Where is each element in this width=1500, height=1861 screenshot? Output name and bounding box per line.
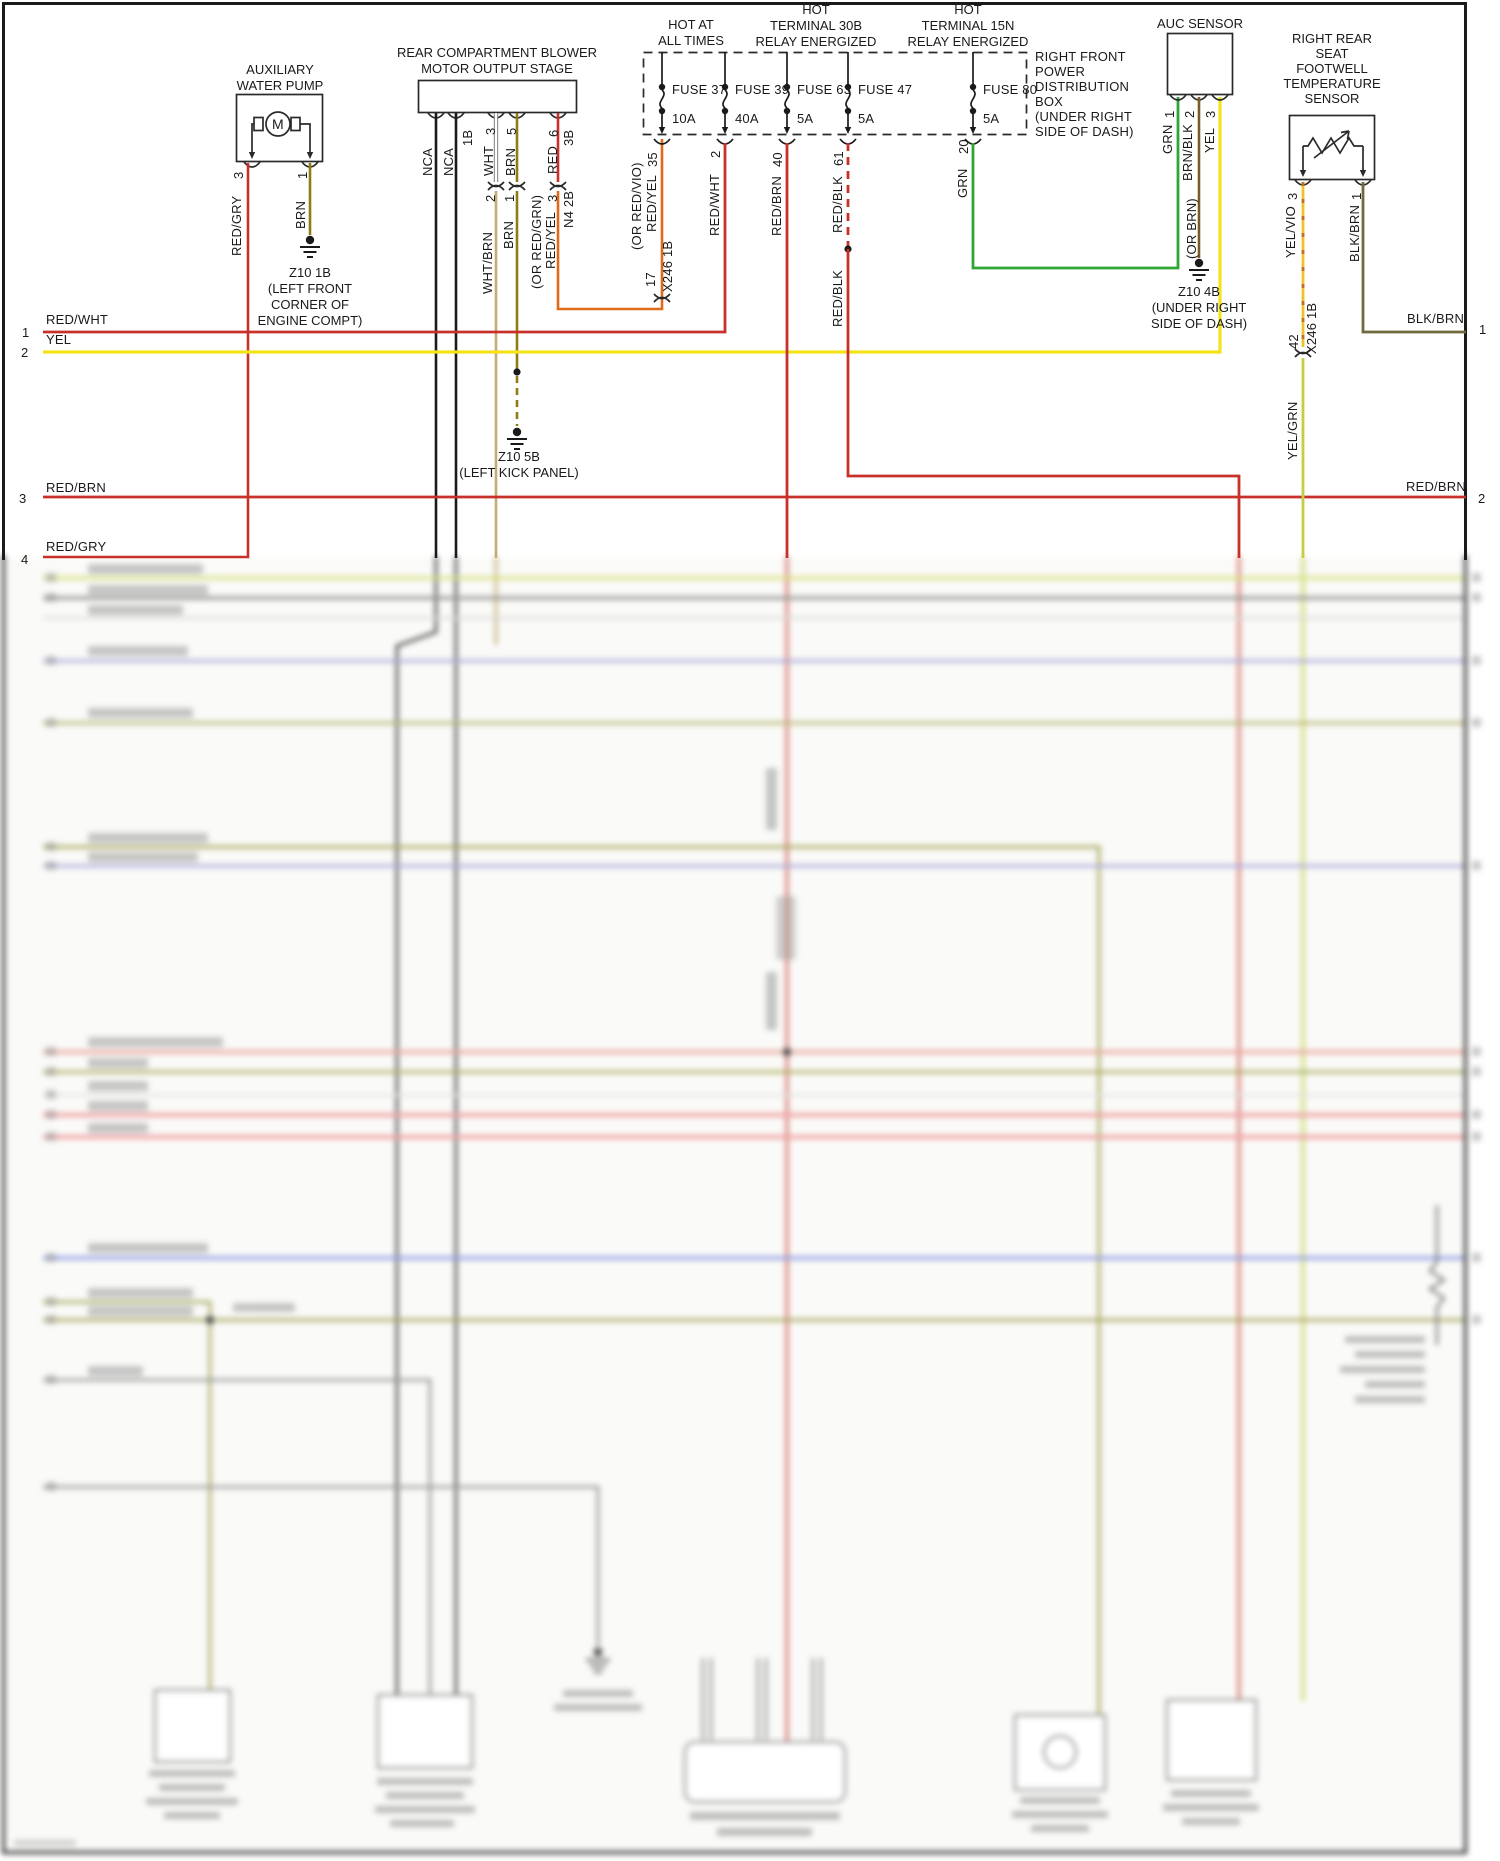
- auc-sensor-symbol: [1168, 34, 1233, 101]
- ground-z10-1b-symbol: [300, 236, 320, 257]
- wiring-diagram-page: AUXILIARY WATER PUMP M 3 1 RED/GRY BRN Z…: [0, 0, 1500, 1861]
- ground-z10-5b-symbol: [507, 428, 527, 449]
- wire-red-wht-row1: [43, 143, 725, 332]
- ground-z10-4b-symbol: [1189, 259, 1209, 280]
- wire-grn: [973, 97, 1178, 268]
- fuse-symbols: [654, 52, 981, 144]
- page-border-line: [4, 4, 1466, 561]
- wire-yel-row2: [43, 97, 1220, 352]
- wire-red-yel: [558, 139, 662, 309]
- wire-red-blk: [848, 249, 1239, 558]
- wiring-schematic: [0, 0, 1500, 1861]
- wire-blk-brn: [1363, 182, 1466, 332]
- power-distribution-box-outline: [644, 53, 1027, 135]
- fuse-dots-arrows: [659, 84, 976, 134]
